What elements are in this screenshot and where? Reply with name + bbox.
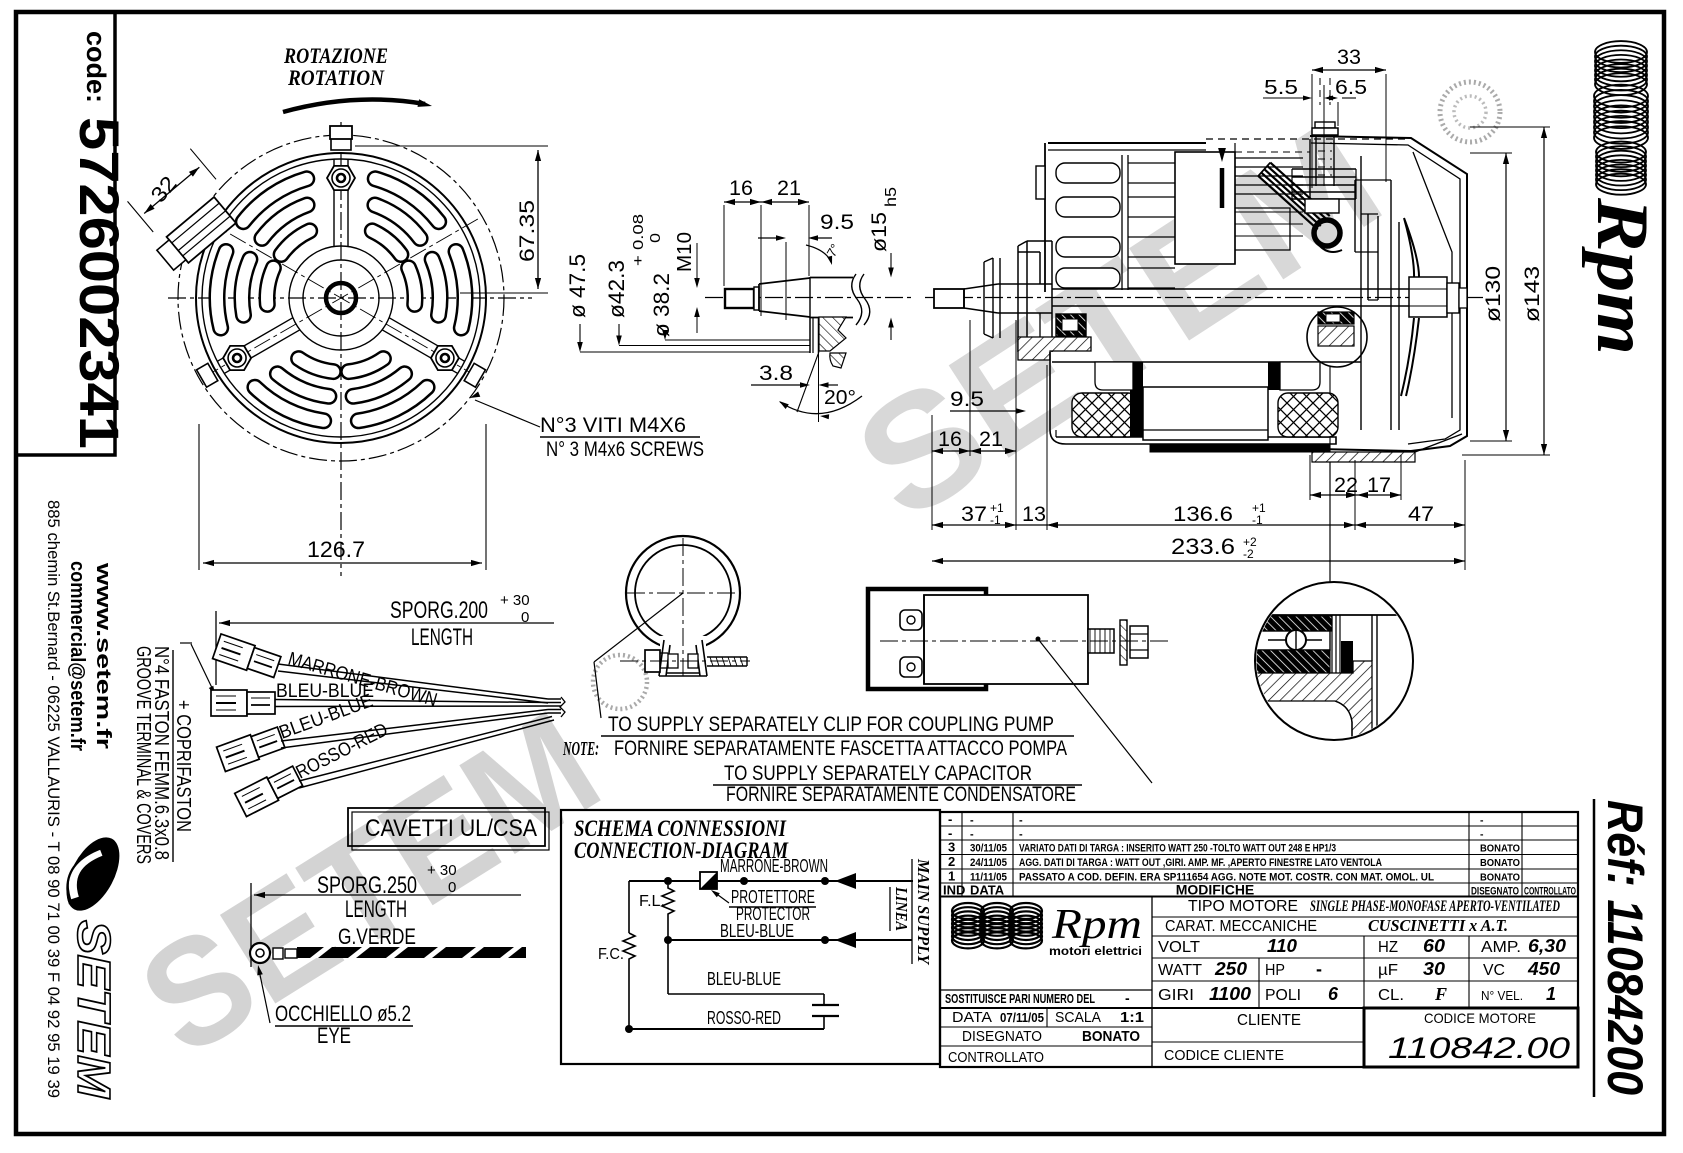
svg-text:CONTROLLATO: CONTROLLATO [948, 1049, 1044, 1066]
svg-text:-: - [948, 826, 952, 841]
svg-text:5.5: 5.5 [1264, 77, 1298, 99]
svg-text:+ 30: + 30 [427, 862, 457, 879]
svg-text:G.VERDE: G.VERDE [338, 924, 416, 949]
svg-text:+ 0.08: + 0.08 [630, 214, 647, 266]
svg-text:BONATO: BONATO [1480, 872, 1520, 884]
svg-text:WATT: WATT [1158, 962, 1202, 979]
svg-text:CODICE CLIENTE: CODICE CLIENTE [1164, 1047, 1284, 1064]
svg-text:SCALA: SCALA [1055, 1009, 1101, 1026]
svg-text:CL.: CL. [1378, 987, 1404, 1004]
svg-text:6,30: 6,30 [1528, 936, 1566, 956]
svg-text:07/11/05: 07/11/05 [1000, 1010, 1044, 1025]
svg-text:9.5: 9.5 [950, 388, 984, 411]
svg-text:SINGLE PHASE-MONOFASE APERTO-: SINGLE PHASE-MONOFASE APERTO-VENTILATED [1310, 898, 1560, 915]
svg-text:TO SUPPLY SEPARATELY CLIP FOR: TO SUPPLY SEPARATELY CLIP FOR COUPLING P… [608, 713, 1054, 736]
svg-text:code:: code: [81, 31, 111, 103]
svg-text:9.5: 9.5 [820, 211, 854, 234]
svg-text:ø130: ø130 [1482, 266, 1505, 322]
svg-text:ROSSO-RED: ROSSO-RED [707, 1008, 781, 1028]
svg-text:IND: IND [943, 883, 965, 898]
svg-text:CODICE MOTORE: CODICE MOTORE [1424, 1010, 1536, 1026]
svg-text:-2: -2 [1243, 547, 1254, 561]
svg-text:33: 33 [1337, 46, 1361, 69]
svg-text:DATA: DATA [952, 1009, 992, 1026]
svg-text:67.35: 67.35 [516, 200, 539, 262]
svg-text:BONATO: BONATO [1480, 843, 1520, 855]
svg-text:N°4 FASTON FEMM.6.3x0.8: N°4 FASTON FEMM.6.3x0.8 [150, 646, 172, 860]
svg-text:885 chemin St.Bernard - 06225: 885 chemin St.Bernard - 06225 VALLAURIS … [44, 500, 63, 1098]
svg-text:-: - [970, 815, 974, 827]
svg-text:-: - [1019, 829, 1023, 841]
svg-text:LENGTH: LENGTH [411, 624, 473, 651]
svg-text:N° 3 M4x6 SCREWS: N° 3 M4x6 SCREWS [546, 438, 704, 461]
svg-text:EYE: EYE [317, 1023, 351, 1048]
svg-text:BONATO: BONATO [1082, 1028, 1140, 1045]
svg-text:SETEM: SETEM [68, 920, 120, 1100]
svg-text:CLIENTE: CLIENTE [1237, 1012, 1301, 1029]
svg-text:BLEU-BLUE: BLEU-BLUE [707, 969, 781, 989]
svg-text:HP: HP [1265, 962, 1285, 979]
svg-text:VOLT: VOLT [1158, 939, 1200, 956]
svg-text:F.C.: F.C. [598, 946, 624, 963]
svg-text:MAIN SUPPLY: MAIN SUPPLY [914, 858, 933, 965]
svg-text:0: 0 [647, 233, 664, 243]
svg-text:FORNIRE SEPARATAMENTE CONDENSA: FORNIRE SEPARATAMENTE CONDENSATORE [726, 783, 1076, 806]
svg-text:CAVETTI UL/CSA: CAVETTI UL/CSA [365, 815, 537, 842]
svg-text:motori elettrici: motori elettrici [1049, 944, 1142, 958]
svg-text:FORNIRE SEPARATAMENTE FASCETTA: FORNIRE SEPARATAMENTE FASCETTA ATTACCO P… [614, 737, 1067, 760]
svg-text:16: 16 [938, 428, 962, 451]
svg-text:POLI: POLI [1265, 987, 1301, 1004]
svg-text:-: - [948, 812, 952, 827]
svg-text:M10: M10 [674, 232, 696, 272]
svg-text:HZ: HZ [1378, 939, 1398, 956]
svg-text:110: 110 [1267, 936, 1297, 956]
svg-text:CONTROLLATO: CONTROLLATO [1524, 886, 1576, 898]
svg-text:VC: VC [1483, 962, 1505, 979]
svg-text:233.6: 233.6 [1171, 534, 1235, 559]
svg-text:LINEA: LINEA [892, 886, 911, 931]
svg-text:GIRI: GIRI [1158, 987, 1194, 1004]
svg-text:h5: h5 [883, 187, 900, 207]
svg-text:ø 47.5: ø 47.5 [565, 254, 590, 318]
svg-text:ø42.3: ø42.3 [604, 260, 629, 318]
svg-text:DATA: DATA [970, 883, 1005, 898]
svg-text:DISEGNATO: DISEGNATO [1471, 886, 1519, 898]
svg-text:SPORG.200: SPORG.200 [390, 597, 488, 624]
svg-text:Rpm: Rpm [1051, 902, 1142, 948]
svg-text:VARIATO DATI DI TARGA : INSERI: VARIATO DATI DI TARGA : INSERITO WATT 25… [1019, 843, 1336, 855]
svg-text:47: 47 [1408, 503, 1434, 526]
svg-text:6: 6 [1328, 984, 1339, 1004]
svg-text:ø15: ø15 [868, 212, 891, 252]
svg-text:TIPO MOTORE: TIPO MOTORE [1188, 898, 1298, 915]
svg-text:BONATO: BONATO [1480, 857, 1520, 869]
svg-text:-: - [1125, 990, 1130, 1006]
svg-text:0: 0 [448, 879, 456, 896]
svg-text:NOTE:: NOTE: [562, 738, 599, 760]
svg-text:30: 30 [1423, 959, 1445, 979]
svg-text:17: 17 [1367, 474, 1391, 497]
svg-text:-: - [1480, 829, 1484, 841]
svg-text:1:1: 1:1 [1120, 1009, 1144, 1026]
svg-text:126.7: 126.7 [307, 537, 365, 562]
svg-text:-: - [1480, 815, 1484, 827]
svg-text:DISEGNATO: DISEGNATO [962, 1028, 1042, 1045]
svg-text:Réf: 11084200: Réf: 11084200 [1597, 800, 1653, 1095]
svg-text:AGG. DATI DI TARGA : WATT OUT: AGG. DATI DI TARGA : WATT OUT ,GIRI. AMP… [1019, 857, 1382, 869]
svg-text:MARRONE-BROWN: MARRONE-BROWN [720, 856, 828, 876]
svg-text:ROTATION: ROTATION [287, 65, 385, 90]
svg-text:µF: µF [1378, 962, 1398, 979]
svg-text:CARAT. MECCANICHE: CARAT. MECCANICHE [1165, 918, 1317, 935]
svg-text:TO SUPPLY SEPARATELY CAPACITOR: TO SUPPLY SEPARATELY CAPACITOR [724, 762, 1032, 785]
svg-text:20°: 20° [824, 387, 856, 409]
svg-text:CUSCINETTI x A.T.: CUSCINETTI x A.T. [1368, 916, 1508, 935]
svg-text:21: 21 [777, 177, 801, 200]
svg-text:AMP.: AMP. [1481, 939, 1521, 956]
svg-text:136.6: 136.6 [1173, 503, 1233, 526]
svg-text:2: 2 [948, 854, 955, 869]
svg-text:1: 1 [948, 869, 955, 884]
svg-text:5726002341: 5726002341 [68, 117, 131, 449]
svg-text:BLEU-BLUE: BLEU-BLUE [720, 921, 794, 941]
svg-text:+ COPRIFASTON: + COPRIFASTON [172, 700, 194, 832]
svg-text:-: - [1019, 815, 1023, 827]
svg-text:37: 37 [961, 503, 987, 526]
svg-text:24/11/05: 24/11/05 [970, 857, 1007, 869]
svg-text:250: 250 [1214, 959, 1247, 979]
svg-text:MODIFICHE: MODIFICHE [1176, 882, 1255, 898]
svg-text:N° VEL.: N° VEL. [1481, 988, 1523, 1003]
svg-text:13: 13 [1022, 503, 1046, 526]
svg-text:450: 450 [1527, 959, 1560, 979]
svg-text:3.8: 3.8 [759, 362, 793, 385]
svg-text:110842.00: 110842.00 [1388, 1032, 1570, 1065]
svg-text:commercial@setem.fr: commercial@setem.fr [66, 561, 88, 751]
svg-text:16: 16 [729, 177, 753, 200]
svg-text:LENGTH: LENGTH [345, 896, 407, 923]
svg-text:www.setem.fr: www.setem.fr [92, 562, 114, 750]
svg-text:30/11/05: 30/11/05 [970, 843, 1007, 855]
svg-text:+ 30: + 30 [500, 592, 530, 609]
svg-text:SOSTITUISCE PARI NUMERO DEL: SOSTITUISCE PARI NUMERO DEL [945, 991, 1095, 1006]
svg-text:ø 38.2: ø 38.2 [649, 273, 674, 337]
svg-text:-: - [1316, 959, 1322, 979]
svg-text:1: 1 [1546, 984, 1556, 1004]
svg-text:Rpm: Rpm [1581, 197, 1663, 355]
svg-text:6.5: 6.5 [1335, 77, 1367, 99]
svg-text:N°3 VITI M4X6: N°3 VITI M4X6 [540, 414, 686, 437]
svg-text:21: 21 [979, 428, 1003, 451]
svg-text:3: 3 [948, 840, 955, 855]
svg-text:-: - [970, 829, 974, 841]
svg-text:F: F [1434, 984, 1447, 1004]
svg-text:60: 60 [1423, 936, 1445, 956]
svg-text:ø143: ø143 [1521, 266, 1544, 322]
svg-text:1100: 1100 [1209, 984, 1251, 1004]
